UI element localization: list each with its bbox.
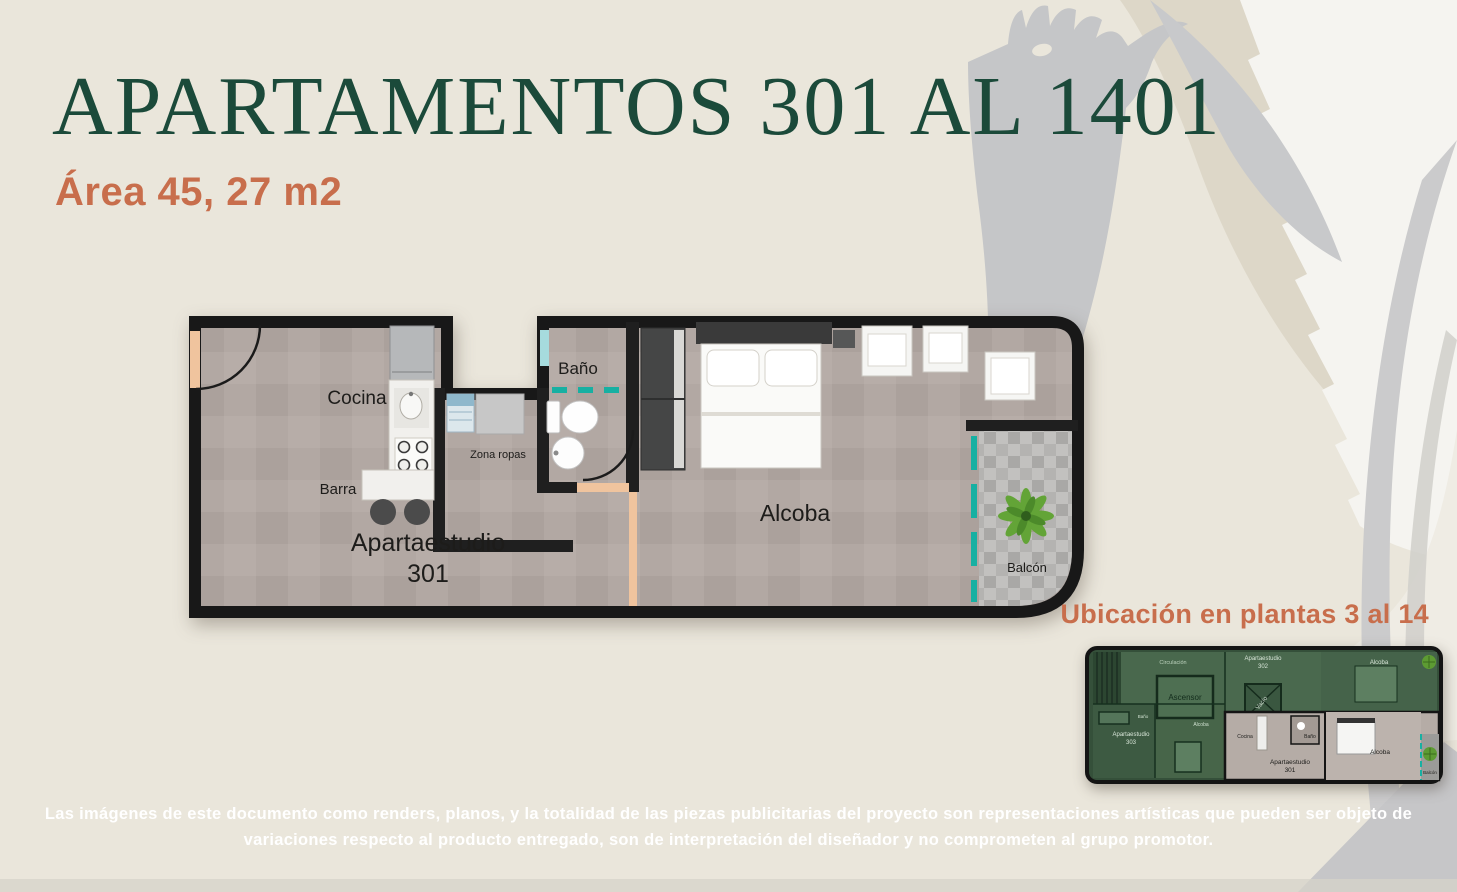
thumb-label-apt-top-name: Apartaestudio — [1244, 656, 1282, 662]
wing-shape — [1190, 0, 1457, 560]
location-heading: Ubicación en plantas 3 al 14 — [1060, 599, 1429, 630]
label-unit-name: Apartaestudio — [351, 529, 505, 557]
thumb-label-ascensor: Ascensor — [1168, 693, 1202, 702]
disclaimer-line-2: variaciones respecto al producto entrega… — [0, 827, 1457, 853]
label-alcoba: Alcoba — [760, 500, 831, 526]
disclaimer-line-1: Las imágenes de este documento como rend… — [0, 801, 1457, 827]
nightstand — [833, 330, 855, 348]
bar-stool — [404, 499, 430, 525]
pillow — [765, 350, 817, 386]
thumb-label-alcoba-left: Alcoba — [1193, 722, 1209, 728]
bird-eye — [1031, 42, 1053, 58]
disclaimer: Las imágenes de este documento como rend… — [0, 801, 1457, 854]
thumb-label-apt-top-number: 302 — [1258, 664, 1269, 670]
label-balcon: Balcón — [1007, 560, 1047, 575]
bath-door-threshold — [577, 483, 629, 492]
label-bano: Baño — [558, 359, 598, 378]
label-cocina: Cocina — [327, 388, 387, 409]
bar-counter — [362, 470, 434, 500]
thumb-label-circulacion: Circulación — [1159, 660, 1186, 666]
kitchen-sink — [400, 393, 422, 419]
bar-stool — [370, 499, 396, 525]
bottom-edge-band — [0, 879, 1457, 892]
thumb-label-apt-left-name: Apartaestudio — [1112, 732, 1150, 738]
toilet-bowl — [562, 401, 598, 433]
thumb-label-bano: Baño — [1304, 734, 1316, 740]
label-zona-ropas: Zona ropas — [470, 449, 526, 461]
pillow — [707, 350, 759, 386]
floor-plan: Cocina Barra Zona ropas Baño Apartaestud… — [185, 312, 1087, 624]
balcony-plant — [998, 488, 1054, 544]
location-thumbnail: Circulación Ascensor Apartaestudio 302 A… — [1085, 646, 1443, 784]
bath-window — [540, 330, 549, 366]
room-divider-threshold — [629, 492, 637, 606]
label-barra: Barra — [320, 481, 357, 498]
thumb-label-apt-left-number: 303 — [1126, 740, 1137, 746]
thumb-label-alcoba: Alcoba — [1370, 749, 1390, 756]
thumb-unit-301 — [1225, 712, 1439, 780]
thumb-label-cocina: Cocina — [1237, 734, 1253, 740]
laundry-furniture — [447, 394, 524, 434]
thumb-label-bano-left: Baño — [1138, 714, 1149, 719]
thumb-label-apt-number: 301 — [1285, 767, 1296, 774]
toilet-tank — [547, 401, 560, 433]
bed-headboard — [696, 322, 832, 344]
thumb-plant-icon — [1422, 655, 1436, 669]
thumb-label-apt-name: Apartaestudio — [1270, 759, 1310, 766]
thumb-label-balcon: Balcón — [1423, 770, 1437, 775]
area-subtitle: Área 45, 27 m2 — [55, 170, 342, 215]
entry-door-threshold — [190, 331, 200, 388]
thumb-kitchen-strip — [1257, 716, 1267, 750]
page-title: APARTAMENTOS 301 AL 1401 — [52, 58, 1222, 155]
thumb-bed-other — [1355, 666, 1397, 702]
thumb-label-alcoba-top-right: Alcoba — [1370, 660, 1389, 666]
label-unit-number: 301 — [407, 560, 449, 588]
laundry-counter — [476, 394, 524, 434]
thumb-plant-icon — [1423, 747, 1437, 761]
